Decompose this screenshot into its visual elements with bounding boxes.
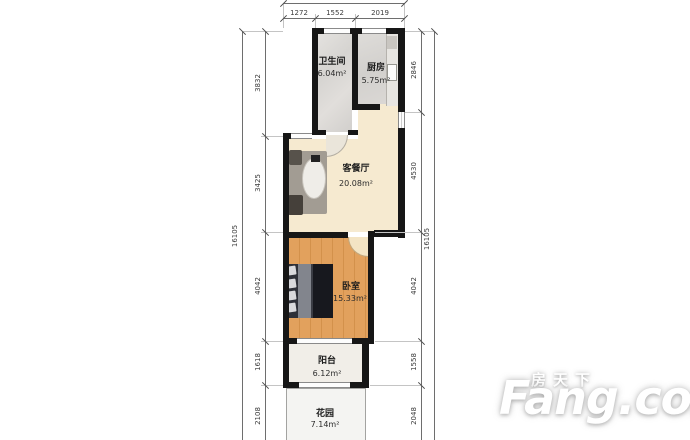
dim-label: 2846 [410, 50, 418, 90]
bed-mattress [298, 264, 311, 318]
dim-label: 1272 [283, 9, 315, 17]
window [324, 28, 350, 34]
watermark-logo: Fang.com [499, 371, 690, 425]
wall-segment [312, 130, 326, 135]
dim-label-total: 16105 [231, 216, 239, 256]
dimension-line-top-total [283, 3, 405, 4]
wall-segment [283, 133, 289, 388]
room-label-garden: 花园 [295, 409, 355, 419]
dim-label: 4042 [410, 266, 418, 306]
tv-unit [311, 155, 320, 162]
window [398, 112, 405, 128]
wall-segment [358, 104, 380, 110]
room-area-bedroom: 15.33m² [320, 294, 380, 303]
wall-segment [283, 382, 299, 388]
room-label-kitchen: 厨房 [346, 63, 406, 73]
room-area-kitchen: 5.75m² [346, 76, 406, 85]
room-area-living: 20.08m² [326, 179, 386, 188]
window [297, 338, 352, 344]
wall-segment [362, 344, 369, 384]
window [362, 28, 386, 34]
dimension-line-right-outer [434, 31, 435, 440]
wall-segment [398, 128, 405, 238]
bed-blanket-fold [311, 264, 313, 318]
dim-label: 4530 [410, 151, 418, 191]
room-area-garden: 7.14m² [295, 420, 355, 429]
dimension-line-top [283, 18, 405, 19]
wall-segment [350, 382, 369, 388]
dim-label: 2108 [254, 396, 262, 436]
witness-line [370, 385, 422, 386]
window [299, 382, 352, 388]
room-label-bedroom: 卧室 [321, 282, 381, 292]
dimension-line-left-outer [242, 31, 243, 440]
room-label-balcony: 阳台 [297, 356, 357, 366]
wall-segment [289, 232, 348, 238]
floorplan-canvas: 卫生间 6.04m² 厨房 5.75m² 客餐厅 20.08m² 卧室 15.3… [0, 0, 690, 440]
wall-segment [283, 338, 297, 344]
wall-segment [348, 130, 358, 135]
dim-label-total: 16105 [423, 219, 431, 259]
witness-line [375, 232, 422, 233]
dim-label: 3425 [254, 163, 262, 203]
dim-label: 4042 [254, 266, 262, 306]
coffee-table [302, 158, 326, 199]
dim-label: 2019 [355, 9, 405, 17]
room-area-balcony: 6.12m² [297, 369, 357, 378]
room-living-floor-upper [358, 104, 398, 144]
dim-label: 2048 [410, 396, 418, 436]
armchair [288, 195, 303, 215]
plant-decor [289, 150, 302, 165]
dim-label: 1618 [254, 342, 262, 382]
room-label-living: 客餐厅 [326, 164, 386, 174]
dim-label: 1552 [315, 9, 355, 17]
window [291, 133, 312, 139]
witness-line [242, 31, 283, 32]
dimension-line-right [421, 31, 422, 440]
dim-label: 1558 [410, 342, 418, 382]
kitchen-stove [387, 36, 397, 49]
dimension-line-left [265, 31, 266, 440]
wall-segment [312, 28, 318, 135]
dim-label: 3832 [254, 63, 262, 103]
